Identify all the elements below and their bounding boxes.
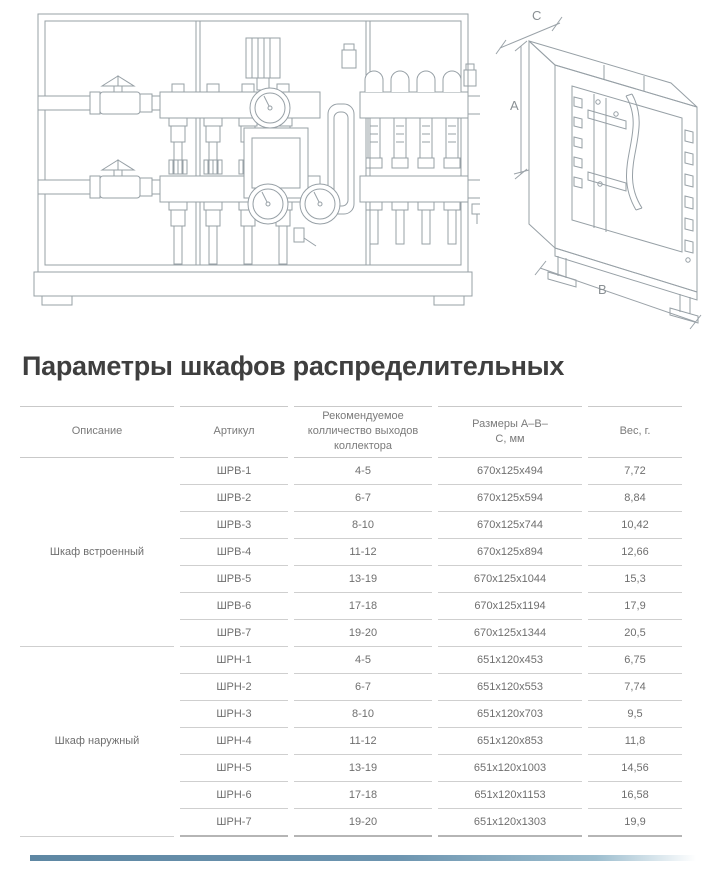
outputs-cell: 11-12 — [294, 728, 432, 755]
weight-cell: 16,58 — [588, 782, 682, 809]
footer-accent-bar — [30, 855, 696, 861]
article-cell: ШРН-1 — [180, 647, 288, 674]
cabinet-isometric-drawing: C A B — [494, 2, 718, 336]
outputs-cell: 8-10 — [294, 512, 432, 539]
outputs-cell: 19-20 — [294, 620, 432, 647]
header-outputs: Рекомендуемое колличество выходов коллек… — [294, 406, 432, 458]
outputs-cell: 4-5 — [294, 647, 432, 674]
dimensions-cell: 670x125x744 — [438, 512, 582, 539]
article-cell: ШРН-4 — [180, 728, 288, 755]
dimensions-cell: 670x125x1194 — [438, 593, 582, 620]
cabinet-spec-table: Описание Артикул Рекомендуемое колличест… — [14, 406, 688, 837]
article-cell: ШРВ-3 — [180, 512, 288, 539]
dimensions-cell: 670x125x494 — [438, 458, 582, 485]
group-description: Шкаф встроенный — [20, 458, 174, 647]
article-cell: ШРВ-7 — [180, 620, 288, 647]
article-cell: ШРВ-4 — [180, 539, 288, 566]
dim-label-a: A — [510, 98, 519, 113]
dimensions-cell: 651x120x1153 — [438, 782, 582, 809]
dimensions-cell: 651x120x853 — [438, 728, 582, 755]
table-row: Шкаф наружный ШРН-1 4-5 651x120x453 6,75 — [20, 647, 682, 674]
dimensions-cell: 670x125x1344 — [438, 620, 582, 647]
article-cell: ШРН-6 — [180, 782, 288, 809]
outputs-cell: 13-19 — [294, 755, 432, 782]
dim-label-c: C — [532, 8, 541, 23]
group-external: Шкаф наружный ШРН-1 4-5 651x120x453 6,75… — [20, 647, 682, 837]
weight-cell: 19,9 — [588, 809, 682, 837]
weight-cell: 20,5 — [588, 620, 682, 647]
supply-pipes — [38, 92, 100, 198]
weight-cell: 7,74 — [588, 674, 682, 701]
article-cell: ШРВ-2 — [180, 485, 288, 512]
weight-cell: 7,72 — [588, 458, 682, 485]
ball-valve-top — [100, 76, 160, 114]
weight-cell: 6,75 — [588, 647, 682, 674]
cabinet-wireframe — [529, 41, 697, 300]
outputs-cell: 17-18 — [294, 593, 432, 620]
dimensions-cell: 651x120x1303 — [438, 809, 582, 837]
article-cell: ШРН-3 — [180, 701, 288, 728]
outputs-cell: 11-12 — [294, 539, 432, 566]
flow-meters — [366, 118, 460, 168]
header-dimensions: Размеры А–В–С, мм — [438, 406, 582, 458]
cabinet-legs — [548, 256, 698, 323]
dimensions-cell: 670x125x594 — [438, 485, 582, 512]
right-manifold-top — [360, 64, 476, 118]
dimensions-cell: 651x120x453 — [438, 647, 582, 674]
table-row: Шкаф встроенный ШРВ-1 4-5 670x125x494 7,… — [20, 458, 682, 485]
table-header-row: Описание Артикул Рекомендуемое колличест… — [20, 406, 682, 458]
technical-drawings: C A B — [0, 0, 719, 338]
outputs-cell: 17-18 — [294, 782, 432, 809]
header-weight: Вес, г. — [588, 406, 682, 458]
weight-cell: 9,5 — [588, 701, 682, 728]
header-article: Артикул — [180, 406, 288, 458]
weight-cell: 15,3 — [588, 566, 682, 593]
dimensions-cell: 651x120x703 — [438, 701, 582, 728]
outputs-cell: 13-19 — [294, 566, 432, 593]
outputs-cell: 4-5 — [294, 458, 432, 485]
weight-cell: 10,42 — [588, 512, 682, 539]
header-description: Описание — [20, 406, 174, 458]
group-built-in: Шкаф встроенный ШРВ-1 4-5 670x125x494 7,… — [20, 458, 682, 647]
dim-label-b: B — [598, 282, 607, 297]
weight-cell: 14,56 — [588, 755, 682, 782]
left-manifold-top — [160, 84, 320, 118]
weight-cell: 17,9 — [588, 593, 682, 620]
manifold-cabinet-drawing — [28, 8, 480, 320]
outputs-cell: 8-10 — [294, 701, 432, 728]
dimension-lines: C A B — [496, 8, 701, 329]
outputs-cell: 6-7 — [294, 674, 432, 701]
group-description: Шкаф наружный — [20, 647, 174, 837]
weight-cell: 8,84 — [588, 485, 682, 512]
ball-valve-bottom — [100, 160, 160, 198]
article-cell: ШРН-2 — [180, 674, 288, 701]
dimensions-cell: 651x120x553 — [438, 674, 582, 701]
weight-cell: 11,8 — [588, 728, 682, 755]
article-cell: ШРН-5 — [180, 755, 288, 782]
dimensions-cell: 670x125x1044 — [438, 566, 582, 593]
article-cell: ШРВ-5 — [180, 566, 288, 593]
article-cell: ШРВ-6 — [180, 593, 288, 620]
article-cell: ШРН-7 — [180, 809, 288, 837]
dimensions-cell: 670x125x894 — [438, 539, 582, 566]
dimensions-cell: 651x120x1003 — [438, 755, 582, 782]
outputs-cell: 6-7 — [294, 485, 432, 512]
outputs-cell: 19-20 — [294, 809, 432, 837]
page-title: Параметры шкафов распределительных — [22, 352, 719, 382]
inner-rails — [588, 94, 690, 262]
article-cell: ШРВ-1 — [180, 458, 288, 485]
weight-cell: 12,66 — [588, 539, 682, 566]
